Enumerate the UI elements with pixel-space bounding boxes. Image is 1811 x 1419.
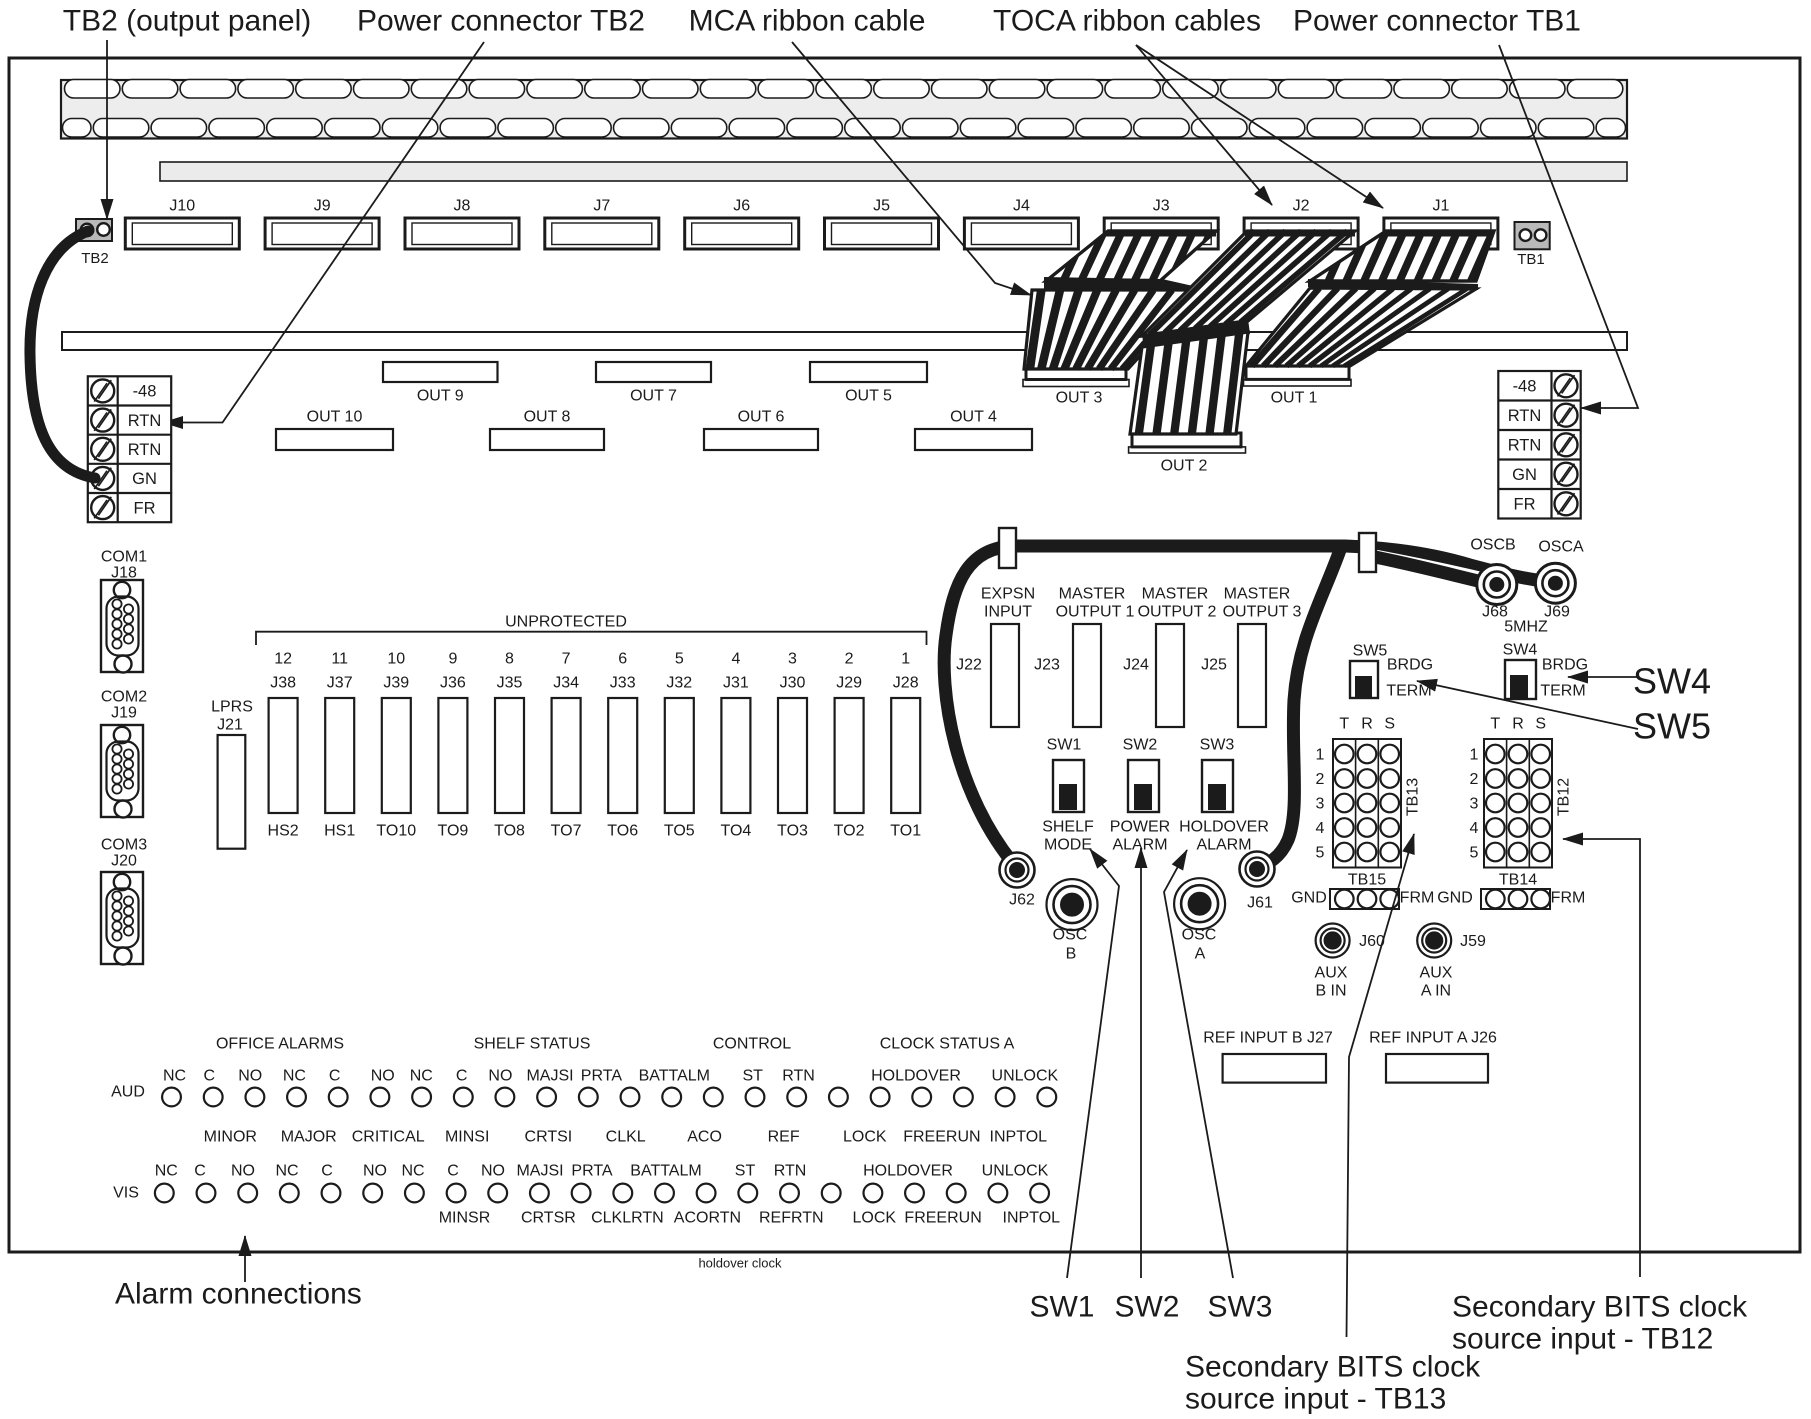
- svg-text:holdover clock: holdover clock: [698, 1256, 782, 1271]
- svg-text:SW5: SW5: [1353, 643, 1388, 660]
- svg-text:GN: GN: [1512, 466, 1537, 484]
- svg-text:NO: NO: [231, 1163, 255, 1180]
- svg-text:J34: J34: [553, 675, 579, 692]
- svg-text:J8: J8: [454, 198, 471, 215]
- svg-text:FR: FR: [134, 499, 156, 517]
- svg-text:12: 12: [274, 651, 292, 668]
- svg-text:POWER: POWER: [1110, 819, 1170, 836]
- svg-text:OUTPUT 3: OUTPUT 3: [1223, 604, 1302, 621]
- svg-text:TB2: TB2: [81, 250, 109, 267]
- svg-text:OUTPUT 1: OUTPUT 1: [1056, 604, 1135, 621]
- svg-text:C: C: [456, 1068, 468, 1085]
- svg-text:MAJSI: MAJSI: [516, 1163, 563, 1180]
- svg-text:REF INPUT B J27: REF INPUT B J27: [1203, 1030, 1333, 1047]
- svg-text:10: 10: [387, 651, 405, 668]
- svg-text:J25: J25: [1201, 657, 1227, 674]
- svg-text:A IN: A IN: [1421, 983, 1451, 1000]
- svg-text:HOLDOVER: HOLDOVER: [863, 1163, 953, 1180]
- svg-text:TOCA ribbon cables: TOCA ribbon cables: [993, 5, 1261, 38]
- svg-text:PRTA: PRTA: [571, 1163, 613, 1180]
- svg-text:TB12: TB12: [1556, 778, 1573, 816]
- svg-text:NO: NO: [363, 1163, 387, 1180]
- svg-text:FR: FR: [1514, 496, 1536, 514]
- svg-text:ST: ST: [742, 1068, 763, 1085]
- svg-text:R: R: [1512, 716, 1524, 733]
- svg-text:RTN: RTN: [128, 412, 162, 430]
- svg-text:FRM: FRM: [1551, 890, 1586, 907]
- svg-text:OSC: OSC: [1182, 927, 1217, 944]
- svg-text:SW2: SW2: [1123, 737, 1158, 754]
- svg-text:J30: J30: [780, 675, 806, 692]
- svg-text:TO7: TO7: [551, 823, 582, 840]
- svg-text:MAJOR: MAJOR: [281, 1129, 337, 1146]
- svg-text:OUT 4: OUT 4: [950, 409, 997, 426]
- svg-text:TERM: TERM: [1540, 683, 1585, 700]
- svg-text:CLKLRTN: CLKLRTN: [591, 1210, 664, 1227]
- svg-text:NO: NO: [488, 1068, 512, 1085]
- svg-text:FRM: FRM: [1400, 890, 1435, 907]
- svg-text:NO: NO: [371, 1068, 395, 1085]
- svg-text:MCA ribbon cable: MCA ribbon cable: [689, 5, 926, 38]
- svg-text:T: T: [1339, 716, 1349, 733]
- svg-text:TO5: TO5: [664, 823, 695, 840]
- svg-text:TO1: TO1: [890, 823, 921, 840]
- svg-text:NO: NO: [238, 1068, 262, 1085]
- svg-text:INPTOL: INPTOL: [1003, 1210, 1061, 1227]
- svg-text:J22: J22: [956, 657, 982, 674]
- svg-text:J39: J39: [383, 675, 409, 692]
- svg-text:J21: J21: [217, 717, 243, 734]
- svg-text:J3: J3: [1153, 198, 1170, 215]
- svg-text:J36: J36: [440, 675, 466, 692]
- svg-text:5: 5: [1470, 845, 1479, 862]
- svg-text:9: 9: [448, 651, 457, 668]
- svg-text:J10: J10: [169, 198, 195, 215]
- svg-text:3: 3: [1470, 796, 1479, 813]
- svg-text:FREERUN: FREERUN: [904, 1210, 981, 1227]
- svg-text:TO6: TO6: [607, 823, 638, 840]
- svg-text:SHELF: SHELF: [1042, 819, 1094, 836]
- svg-text:4: 4: [1470, 820, 1479, 837]
- svg-text:UNPROTECTED: UNPROTECTED: [505, 614, 627, 631]
- svg-text:1: 1: [1470, 747, 1479, 764]
- svg-text:J62: J62: [1009, 892, 1035, 909]
- svg-text:7: 7: [562, 651, 571, 668]
- svg-text:3: 3: [1316, 796, 1325, 813]
- svg-text:C: C: [447, 1163, 459, 1180]
- svg-text:BATTALM: BATTALM: [630, 1163, 701, 1180]
- svg-text:RTN: RTN: [128, 441, 162, 459]
- svg-text:FREERUN: FREERUN: [903, 1129, 980, 1146]
- svg-text:CRITICAL: CRITICAL: [352, 1129, 425, 1146]
- svg-text:TB15: TB15: [1348, 872, 1386, 889]
- svg-text:OUT 6: OUT 6: [738, 409, 785, 426]
- svg-text:INPUT: INPUT: [984, 604, 1032, 621]
- svg-text:OSC: OSC: [1053, 927, 1088, 944]
- svg-text:J28: J28: [893, 675, 919, 692]
- svg-text:REF: REF: [768, 1129, 800, 1146]
- svg-text:4: 4: [1316, 820, 1325, 837]
- svg-text:6: 6: [618, 651, 627, 668]
- svg-text:J33: J33: [610, 675, 636, 692]
- svg-text:J31: J31: [723, 675, 749, 692]
- svg-text:SW2: SW2: [1114, 1291, 1179, 1324]
- svg-text:AUX: AUX: [1420, 965, 1453, 982]
- svg-text:3: 3: [788, 651, 797, 668]
- svg-text:ACORTN: ACORTN: [674, 1210, 741, 1227]
- svg-text:AUX: AUX: [1315, 965, 1348, 982]
- svg-text:1: 1: [901, 651, 910, 668]
- svg-text:J20: J20: [111, 853, 137, 870]
- svg-text:NC: NC: [401, 1163, 424, 1180]
- svg-text:J24: J24: [1123, 657, 1149, 674]
- svg-text:T: T: [1490, 716, 1500, 733]
- svg-text:HOLDOVER: HOLDOVER: [1179, 819, 1269, 836]
- svg-text:TB1: TB1: [1517, 251, 1545, 268]
- svg-text:TO10: TO10: [376, 823, 416, 840]
- svg-text:TO4: TO4: [720, 823, 751, 840]
- svg-text:GND: GND: [1291, 890, 1327, 907]
- svg-text:LOCK: LOCK: [853, 1210, 897, 1227]
- svg-text:A: A: [1195, 946, 1206, 963]
- svg-text:TB13: TB13: [1405, 778, 1422, 816]
- svg-text:Secondary BITS clock: Secondary BITS clock: [1452, 1291, 1748, 1324]
- svg-text:OUT 1: OUT 1: [1271, 390, 1318, 407]
- svg-text:RTN: RTN: [1508, 407, 1542, 425]
- svg-text:SW4: SW4: [1503, 642, 1538, 659]
- svg-text:INPTOL: INPTOL: [990, 1129, 1048, 1146]
- svg-text:-48: -48: [1513, 378, 1537, 396]
- svg-text:TO2: TO2: [834, 823, 865, 840]
- svg-text:VIS: VIS: [113, 1185, 139, 1202]
- svg-text:SW4: SW4: [1633, 661, 1711, 702]
- svg-text:RTN: RTN: [1508, 437, 1542, 455]
- svg-text:TB14: TB14: [1499, 872, 1537, 889]
- svg-text:2: 2: [1470, 771, 1479, 788]
- svg-text:LPRS: LPRS: [211, 699, 253, 716]
- svg-text:OSCB: OSCB: [1470, 537, 1515, 554]
- svg-text:5: 5: [675, 651, 684, 668]
- svg-text:ST: ST: [735, 1163, 756, 1180]
- svg-text:J23: J23: [1034, 657, 1060, 674]
- svg-text:HOLDOVER: HOLDOVER: [871, 1068, 961, 1085]
- svg-text:OUT 2: OUT 2: [1161, 458, 1208, 475]
- svg-text:REF INPUT A J26: REF INPUT A J26: [1369, 1030, 1497, 1047]
- svg-text:CLKL: CLKL: [606, 1129, 646, 1146]
- svg-text:MASTER: MASTER: [1059, 586, 1126, 603]
- svg-text:MINSR: MINSR: [439, 1210, 491, 1227]
- svg-text:5: 5: [1316, 845, 1325, 862]
- svg-text:MAJSI: MAJSI: [526, 1068, 573, 1085]
- svg-text:J59: J59: [1460, 933, 1486, 950]
- svg-text:B: B: [1066, 946, 1077, 963]
- svg-text:Power connector TB1: Power connector TB1: [1293, 5, 1581, 38]
- svg-text:ACO: ACO: [687, 1129, 722, 1146]
- svg-text:COM2: COM2: [101, 689, 147, 706]
- svg-text:NC: NC: [163, 1068, 186, 1085]
- svg-text:ALARM: ALARM: [1196, 837, 1251, 854]
- svg-text:J6: J6: [733, 198, 750, 215]
- svg-text:source input - TB13: source input - TB13: [1185, 1383, 1446, 1415]
- svg-text:RTN: RTN: [774, 1163, 807, 1180]
- svg-text:5MHZ: 5MHZ: [1504, 619, 1548, 636]
- svg-text:OSCA: OSCA: [1538, 539, 1584, 556]
- svg-text:J38: J38: [270, 675, 296, 692]
- svg-text:S: S: [1384, 716, 1395, 733]
- svg-text:SW3: SW3: [1200, 737, 1235, 754]
- svg-text:2: 2: [845, 651, 854, 668]
- svg-text:GND: GND: [1437, 890, 1473, 907]
- svg-text:NO: NO: [481, 1163, 505, 1180]
- svg-text:C: C: [194, 1163, 206, 1180]
- svg-text:OUT 5: OUT 5: [845, 388, 892, 405]
- svg-text:C: C: [204, 1068, 216, 1085]
- svg-text:J4: J4: [1013, 198, 1030, 215]
- svg-text:J7: J7: [593, 198, 610, 215]
- svg-text:CRTSI: CRTSI: [525, 1129, 573, 1146]
- svg-text:MINSI: MINSI: [445, 1129, 489, 1146]
- svg-text:TO8: TO8: [494, 823, 525, 840]
- svg-text:LOCK: LOCK: [843, 1129, 887, 1146]
- svg-text:J5: J5: [873, 198, 890, 215]
- svg-text:TB2 (output panel): TB2 (output panel): [63, 5, 311, 38]
- svg-text:SW1: SW1: [1029, 1291, 1094, 1324]
- svg-text:OUTPUT 2: OUTPUT 2: [1138, 604, 1217, 621]
- svg-text:8: 8: [505, 651, 514, 668]
- svg-text:AUD: AUD: [111, 1084, 145, 1101]
- svg-text:J35: J35: [497, 675, 523, 692]
- svg-text:SW3: SW3: [1207, 1291, 1272, 1324]
- svg-text:Alarm connections: Alarm connections: [115, 1278, 362, 1311]
- svg-text:MINOR: MINOR: [204, 1129, 257, 1146]
- svg-text:J69: J69: [1544, 604, 1570, 621]
- svg-text:REFRTN: REFRTN: [759, 1210, 824, 1227]
- svg-text:J1: J1: [1432, 198, 1449, 215]
- svg-text:BRDG: BRDG: [1542, 657, 1588, 674]
- svg-text:GN: GN: [132, 470, 157, 488]
- svg-text:RTN: RTN: [782, 1068, 815, 1085]
- svg-text:COM1: COM1: [101, 549, 147, 566]
- svg-text:ALARM: ALARM: [1112, 837, 1167, 854]
- svg-text:OUT 9: OUT 9: [417, 388, 464, 405]
- svg-text:J19: J19: [111, 705, 137, 722]
- svg-text:source input - TB12: source input - TB12: [1452, 1323, 1713, 1356]
- svg-text:4: 4: [731, 651, 740, 668]
- svg-text:S: S: [1535, 716, 1546, 733]
- svg-text:COM3: COM3: [101, 837, 147, 854]
- svg-text:SW1: SW1: [1047, 737, 1082, 754]
- svg-text:C: C: [329, 1068, 341, 1085]
- svg-text:OUT 7: OUT 7: [630, 388, 677, 405]
- svg-text:CONTROL: CONTROL: [713, 1036, 791, 1053]
- svg-text:TO3: TO3: [777, 823, 808, 840]
- svg-text:CRTSR: CRTSR: [521, 1210, 576, 1227]
- svg-text:HS2: HS2: [268, 823, 299, 840]
- svg-text:J32: J32: [666, 675, 692, 692]
- svg-text:TERM: TERM: [1386, 683, 1431, 700]
- svg-text:C: C: [321, 1163, 333, 1180]
- svg-text:UNLOCK: UNLOCK: [992, 1068, 1059, 1085]
- svg-text:J9: J9: [314, 198, 331, 215]
- svg-text:MASTER: MASTER: [1142, 586, 1209, 603]
- svg-text:-48: -48: [133, 383, 157, 401]
- svg-text:SHELF STATUS: SHELF STATUS: [474, 1036, 591, 1053]
- svg-text:SW5: SW5: [1633, 706, 1711, 747]
- svg-text:J61: J61: [1247, 895, 1273, 912]
- svg-text:Secondary BITS clock: Secondary BITS clock: [1185, 1351, 1481, 1384]
- svg-text:PRTA: PRTA: [581, 1068, 623, 1085]
- svg-text:B IN: B IN: [1315, 983, 1346, 1000]
- svg-text:CLOCK STATUS A: CLOCK STATUS A: [880, 1036, 1015, 1053]
- svg-text:BRDG: BRDG: [1387, 657, 1433, 674]
- svg-text:OUT 8: OUT 8: [524, 409, 571, 426]
- svg-text:J29: J29: [836, 675, 862, 692]
- svg-text:J2: J2: [1293, 198, 1310, 215]
- svg-text:BATTALM: BATTALM: [639, 1068, 710, 1085]
- svg-text:NC: NC: [283, 1068, 306, 1085]
- svg-text:NC: NC: [275, 1163, 298, 1180]
- svg-text:NC: NC: [155, 1163, 178, 1180]
- svg-text:11: 11: [331, 651, 348, 668]
- svg-text:TO9: TO9: [437, 823, 468, 840]
- svg-text:HS1: HS1: [324, 823, 355, 840]
- svg-text:J37: J37: [327, 675, 353, 692]
- svg-text:OUT 10: OUT 10: [307, 409, 363, 426]
- svg-text:2: 2: [1316, 771, 1325, 788]
- svg-text:Power connector TB2: Power connector TB2: [357, 5, 645, 38]
- svg-text:OFFICE ALARMS: OFFICE ALARMS: [216, 1036, 344, 1053]
- svg-text:R: R: [1361, 716, 1373, 733]
- svg-text:UNLOCK: UNLOCK: [982, 1163, 1049, 1180]
- svg-text:OUT 3: OUT 3: [1056, 390, 1103, 407]
- svg-text:NC: NC: [410, 1068, 433, 1085]
- svg-text:1: 1: [1316, 747, 1325, 764]
- svg-text:MASTER: MASTER: [1224, 586, 1291, 603]
- svg-text:EXPSN: EXPSN: [981, 586, 1035, 603]
- svg-text:MODE: MODE: [1044, 837, 1092, 854]
